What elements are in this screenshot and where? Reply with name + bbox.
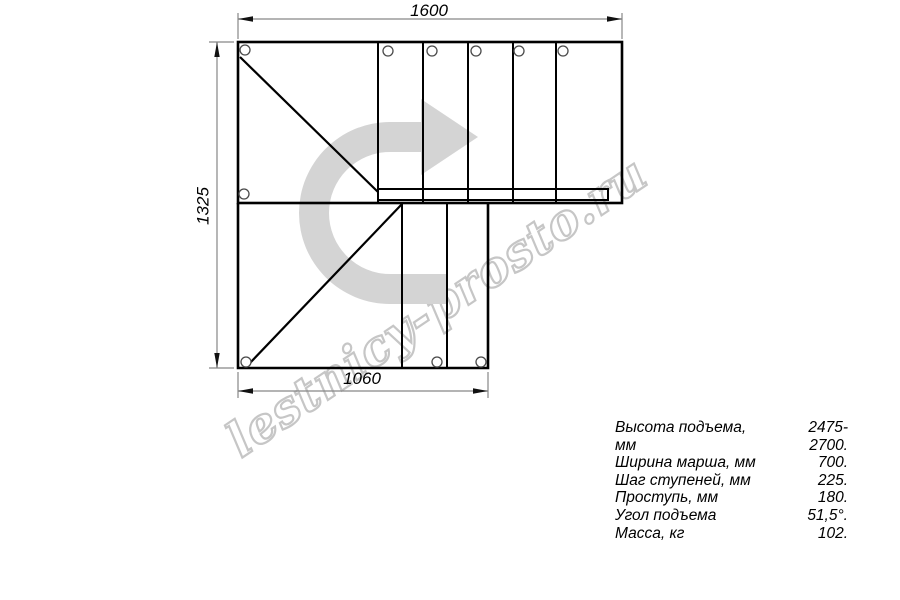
mount-holes — [239, 45, 568, 367]
spec-row-step-pitch: Шаг ступеней, мм 225. — [615, 472, 848, 490]
staircase-plan-page: lestnicy-prosto.ru — [0, 0, 900, 600]
direction-arrow-icon — [299, 99, 478, 304]
spec-value: 102. — [818, 525, 848, 543]
spec-label: Масса, кг — [615, 525, 684, 543]
spec-value: 180. — [818, 489, 848, 507]
dimension-label-top-width: 1600 — [410, 2, 448, 19]
spec-row-flight-width: Ширина марша, мм 700. — [615, 454, 848, 472]
spec-row-tread: Проступь, мм 180. — [615, 489, 848, 507]
stair-outline — [238, 42, 622, 368]
specs-table: Высота подъема, мм 2475-2700. Ширина мар… — [615, 419, 848, 542]
spec-label: Проступь, мм — [615, 489, 718, 507]
spec-row-climb-angle: Угол подъема 51,5°. — [615, 507, 848, 525]
dimension-label-left-height: 1325 — [195, 187, 212, 225]
spec-value: 225. — [818, 472, 848, 490]
spec-row-mass: Масса, кг 102. — [615, 525, 848, 543]
spec-value: 2475-2700. — [770, 419, 848, 454]
dimension-label-bottom-width: 1060 — [343, 370, 381, 387]
spec-row-rise-height: Высота подъема, мм 2475-2700. — [615, 419, 848, 454]
carriage-strip — [378, 189, 608, 200]
spec-label: Шаг ступеней, мм — [615, 472, 751, 490]
spec-label: Высота подъема, мм — [615, 419, 770, 454]
spec-label: Ширина марша, мм — [615, 454, 756, 472]
spec-label: Угол подъема — [615, 507, 716, 525]
spec-value: 700. — [818, 454, 848, 472]
spec-value: 51,5°. — [807, 507, 848, 525]
